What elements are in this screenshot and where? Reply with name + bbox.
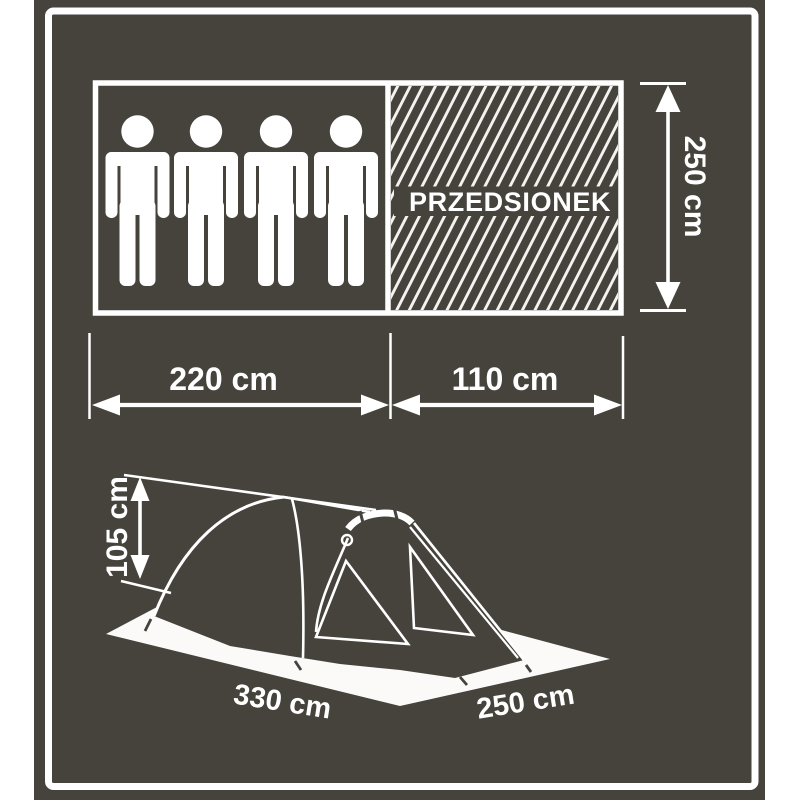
svg-text:105 cm: 105 cm: [101, 476, 134, 578]
svg-text:220 cm: 220 cm: [169, 361, 278, 397]
svg-text:PRZEDSIONEK: PRZEDSIONEK: [409, 187, 611, 217]
svg-text:110 cm: 110 cm: [452, 361, 559, 397]
svg-text:250 cm: 250 cm: [678, 136, 711, 238]
